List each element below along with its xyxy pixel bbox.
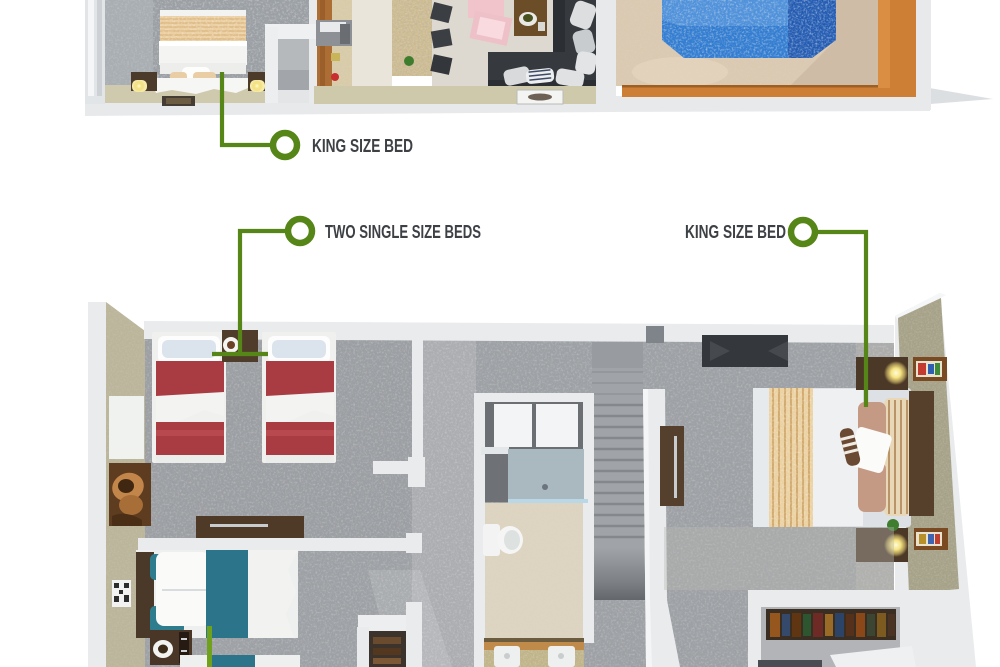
svg-text:KING SIZE BED: KING SIZE BED [685,221,786,242]
svg-text:KING SIZE BED: KING SIZE BED [312,135,413,156]
svg-text:TWO SINGLE SIZE BEDS: TWO SINGLE SIZE BEDS [325,221,481,242]
